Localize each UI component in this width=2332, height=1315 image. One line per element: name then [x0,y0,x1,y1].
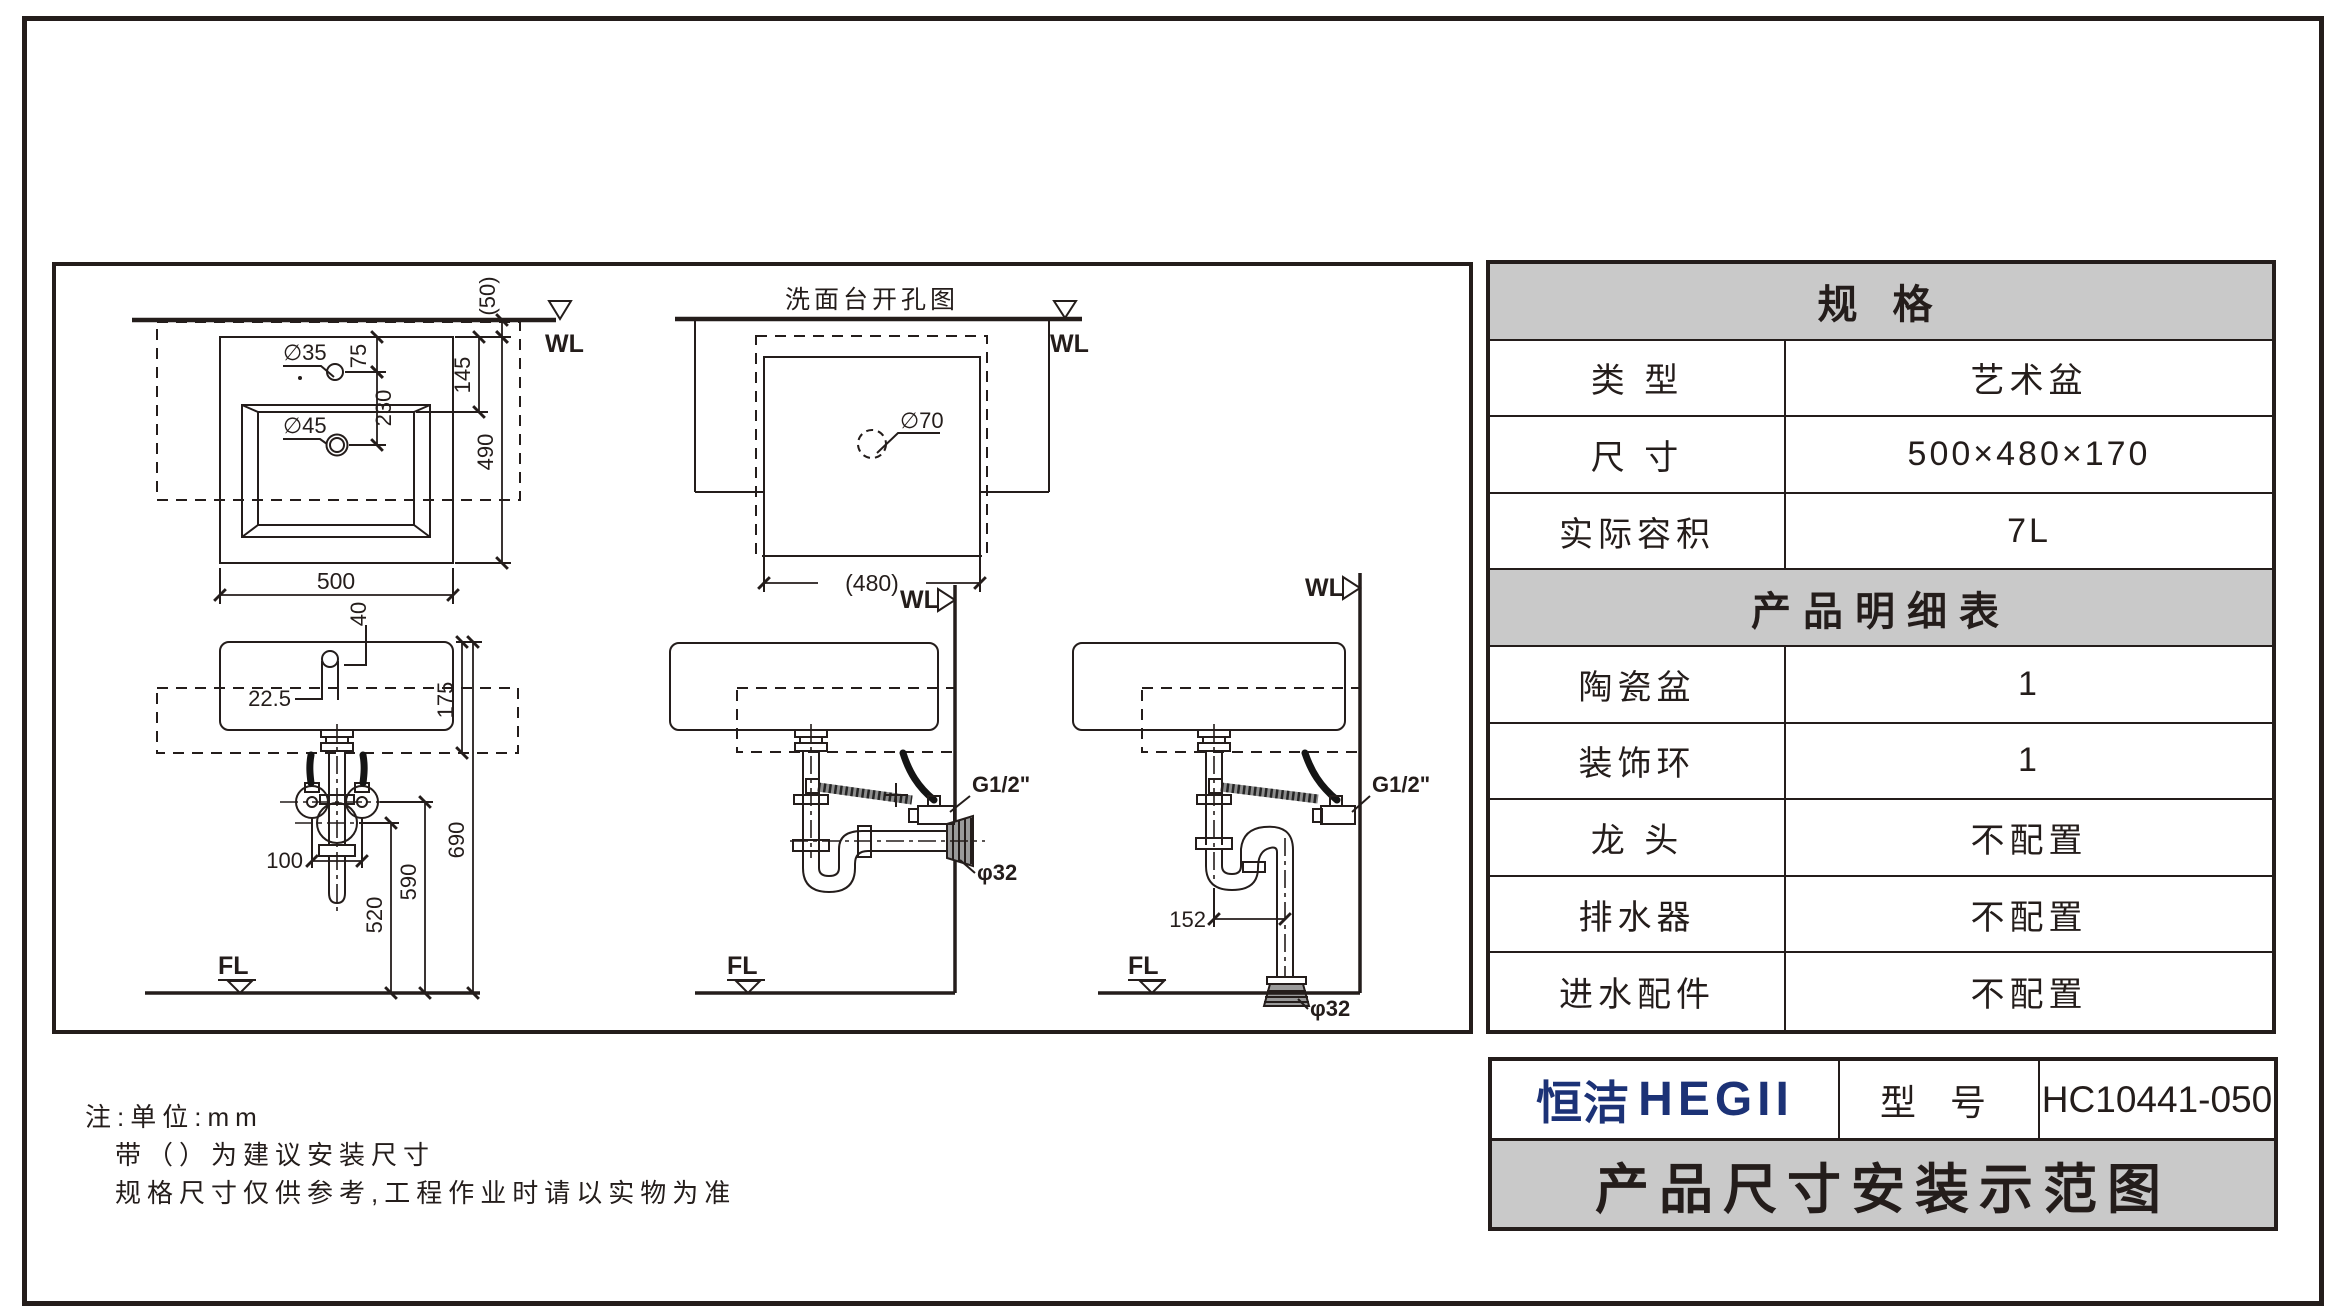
wl-triangle-icon [938,589,955,611]
brand-logo-cn: 恒洁 [1536,1067,1630,1133]
plan-view-drawing: WL ∅35 ∅45 [132,276,584,604]
floor-drain-drawing: WL 152 G1/2" [1073,573,1430,1021]
detail-header-text: 产品明细表 [1751,579,2011,637]
dim-690: 690 [444,822,469,859]
angle-valve [918,806,954,824]
walldrain-wl-label: WL [900,586,939,614]
model-value: HC10441-050 [2040,1061,2274,1138]
table-row: 实际容积 7L [1490,494,2272,571]
brand-logo-en: HEGII [1638,1072,1794,1127]
model-label: 型 号 [1840,1061,2040,1138]
dim-230: 230 [371,390,396,427]
brand-logo: 恒洁 HEGII [1492,1061,1840,1138]
floordrain-wl-label: WL [1305,574,1344,602]
cutout-view-drawing: 洗面台开孔图 WL ∅70 (480) [675,286,1089,596]
table-row: 尺 寸 500×480×170 [1490,417,2272,494]
wl-triangle-icon [549,301,571,319]
table-row: 陶瓷盆 1 [1490,647,2272,724]
drain-cutout-hole [858,430,886,458]
wl-triangle-icon [1054,301,1076,318]
fl-triangle-icon [228,981,252,993]
dim-520: 520 [362,897,387,934]
spec-header: 规 格 [1490,264,2272,341]
row-value: 艺术盆 [1786,341,2272,416]
row-label: 实际容积 [1490,494,1786,569]
s-trap [1206,827,1293,983]
note-line-3: 规格尺寸仅供参考,工程作业时请以实物为准 [85,1174,736,1212]
note-line-1: 注:单位:mm [85,1098,736,1136]
hole-45-label: ∅45 [283,413,327,438]
title-block: 恒洁 HEGII 型 号 HC10441-050 产品尺寸安装示范图 [1488,1057,2278,1231]
angle-valve [1321,806,1355,824]
detail-header: 产品明细表 [1490,570,2272,647]
dim-22-5: 22.5 [248,686,291,711]
row-label: 排水器 [1490,877,1786,952]
front-fl-label: FL [218,952,249,980]
fl-triangle-icon [736,981,760,993]
dim-100: 100 [266,848,303,873]
dim-40: 40 [346,602,371,626]
row-value: 7L [1786,494,2272,569]
row-value: 不配置 [1786,953,2272,1030]
spec-header-text: 规 格 [1817,272,1944,330]
dim-500: 500 [317,568,355,594]
row-label: 尺 寸 [1490,417,1786,492]
wl-triangle-icon [1343,577,1360,599]
row-value: 不配置 [1786,800,2272,875]
row-label: 装饰环 [1490,724,1786,799]
technical-drawings: WL ∅35 ∅45 [52,262,1473,1034]
table-row: 排水器 不配置 [1490,877,2272,954]
g12-label: G1/2" [972,772,1030,797]
table-row: 类 型 艺术盆 [1490,341,2272,418]
spec-table: 规 格 类 型 艺术盆 尺 寸 500×480×170 实际容积 7L 产品明细… [1486,260,2276,1034]
doc-title-text: 产品尺寸安装示范图 [1595,1145,2171,1224]
row-value: 不配置 [1786,877,2272,952]
row-value: 1 [1786,647,2272,722]
page: WL ∅35 ∅45 [0,0,2332,1315]
fl-triangle-icon [1140,981,1164,993]
dim-152: 152 [1169,907,1206,932]
dim-175: 175 [433,682,458,719]
plan-wl-label: WL [545,330,584,358]
cutout-title: 洗面台开孔图 [785,286,959,314]
dim-145: 145 [450,357,475,394]
phi32-label: φ32 [1310,996,1350,1021]
walldrain-fl-label: FL [727,952,758,980]
supply-hose [903,753,934,800]
doc-title: 产品尺寸安装示范图 [1492,1141,2274,1227]
hose-fitting [806,779,819,793]
row-label: 龙 头 [1490,800,1786,875]
table-row: 进水配件 不配置 [1490,953,2272,1030]
dim-75: 75 [346,344,371,368]
floordrain-fl-label: FL [1128,952,1159,980]
hole-70-label: ∅70 [900,408,944,433]
g12-label: G1/2" [1372,772,1430,797]
wall-drain-drawing: WL [670,585,1030,993]
note-line-2: 带（）为建议安装尺寸 [85,1136,736,1174]
phi32-label: φ32 [977,860,1017,885]
table-row: 装饰环 1 [1490,724,2272,801]
row-label: 进水配件 [1490,953,1786,1030]
cutout-wl-label: WL [1050,330,1089,358]
row-label: 陶瓷盆 [1490,647,1786,722]
dim-50: (50) [475,276,500,315]
hose-fitting [1209,779,1222,793]
row-label: 类 型 [1490,341,1786,416]
dim-480: (480) [845,570,899,596]
front-view-drawing: 40 22.5 175 690 590 520 100 [145,602,518,993]
supply-hose [1305,753,1337,800]
table-row: 龙 头 不配置 [1490,800,2272,877]
row-value: 1 [1786,724,2272,799]
hole-35-label: ∅35 [283,340,327,365]
dim-590: 590 [396,864,421,901]
dim-490: 490 [473,434,498,471]
row-value: 500×480×170 [1786,417,2272,492]
notes: 注:单位:mm 带（）为建议安装尺寸 规格尺寸仅供参考,工程作业时请以实物为准 [85,1098,736,1212]
